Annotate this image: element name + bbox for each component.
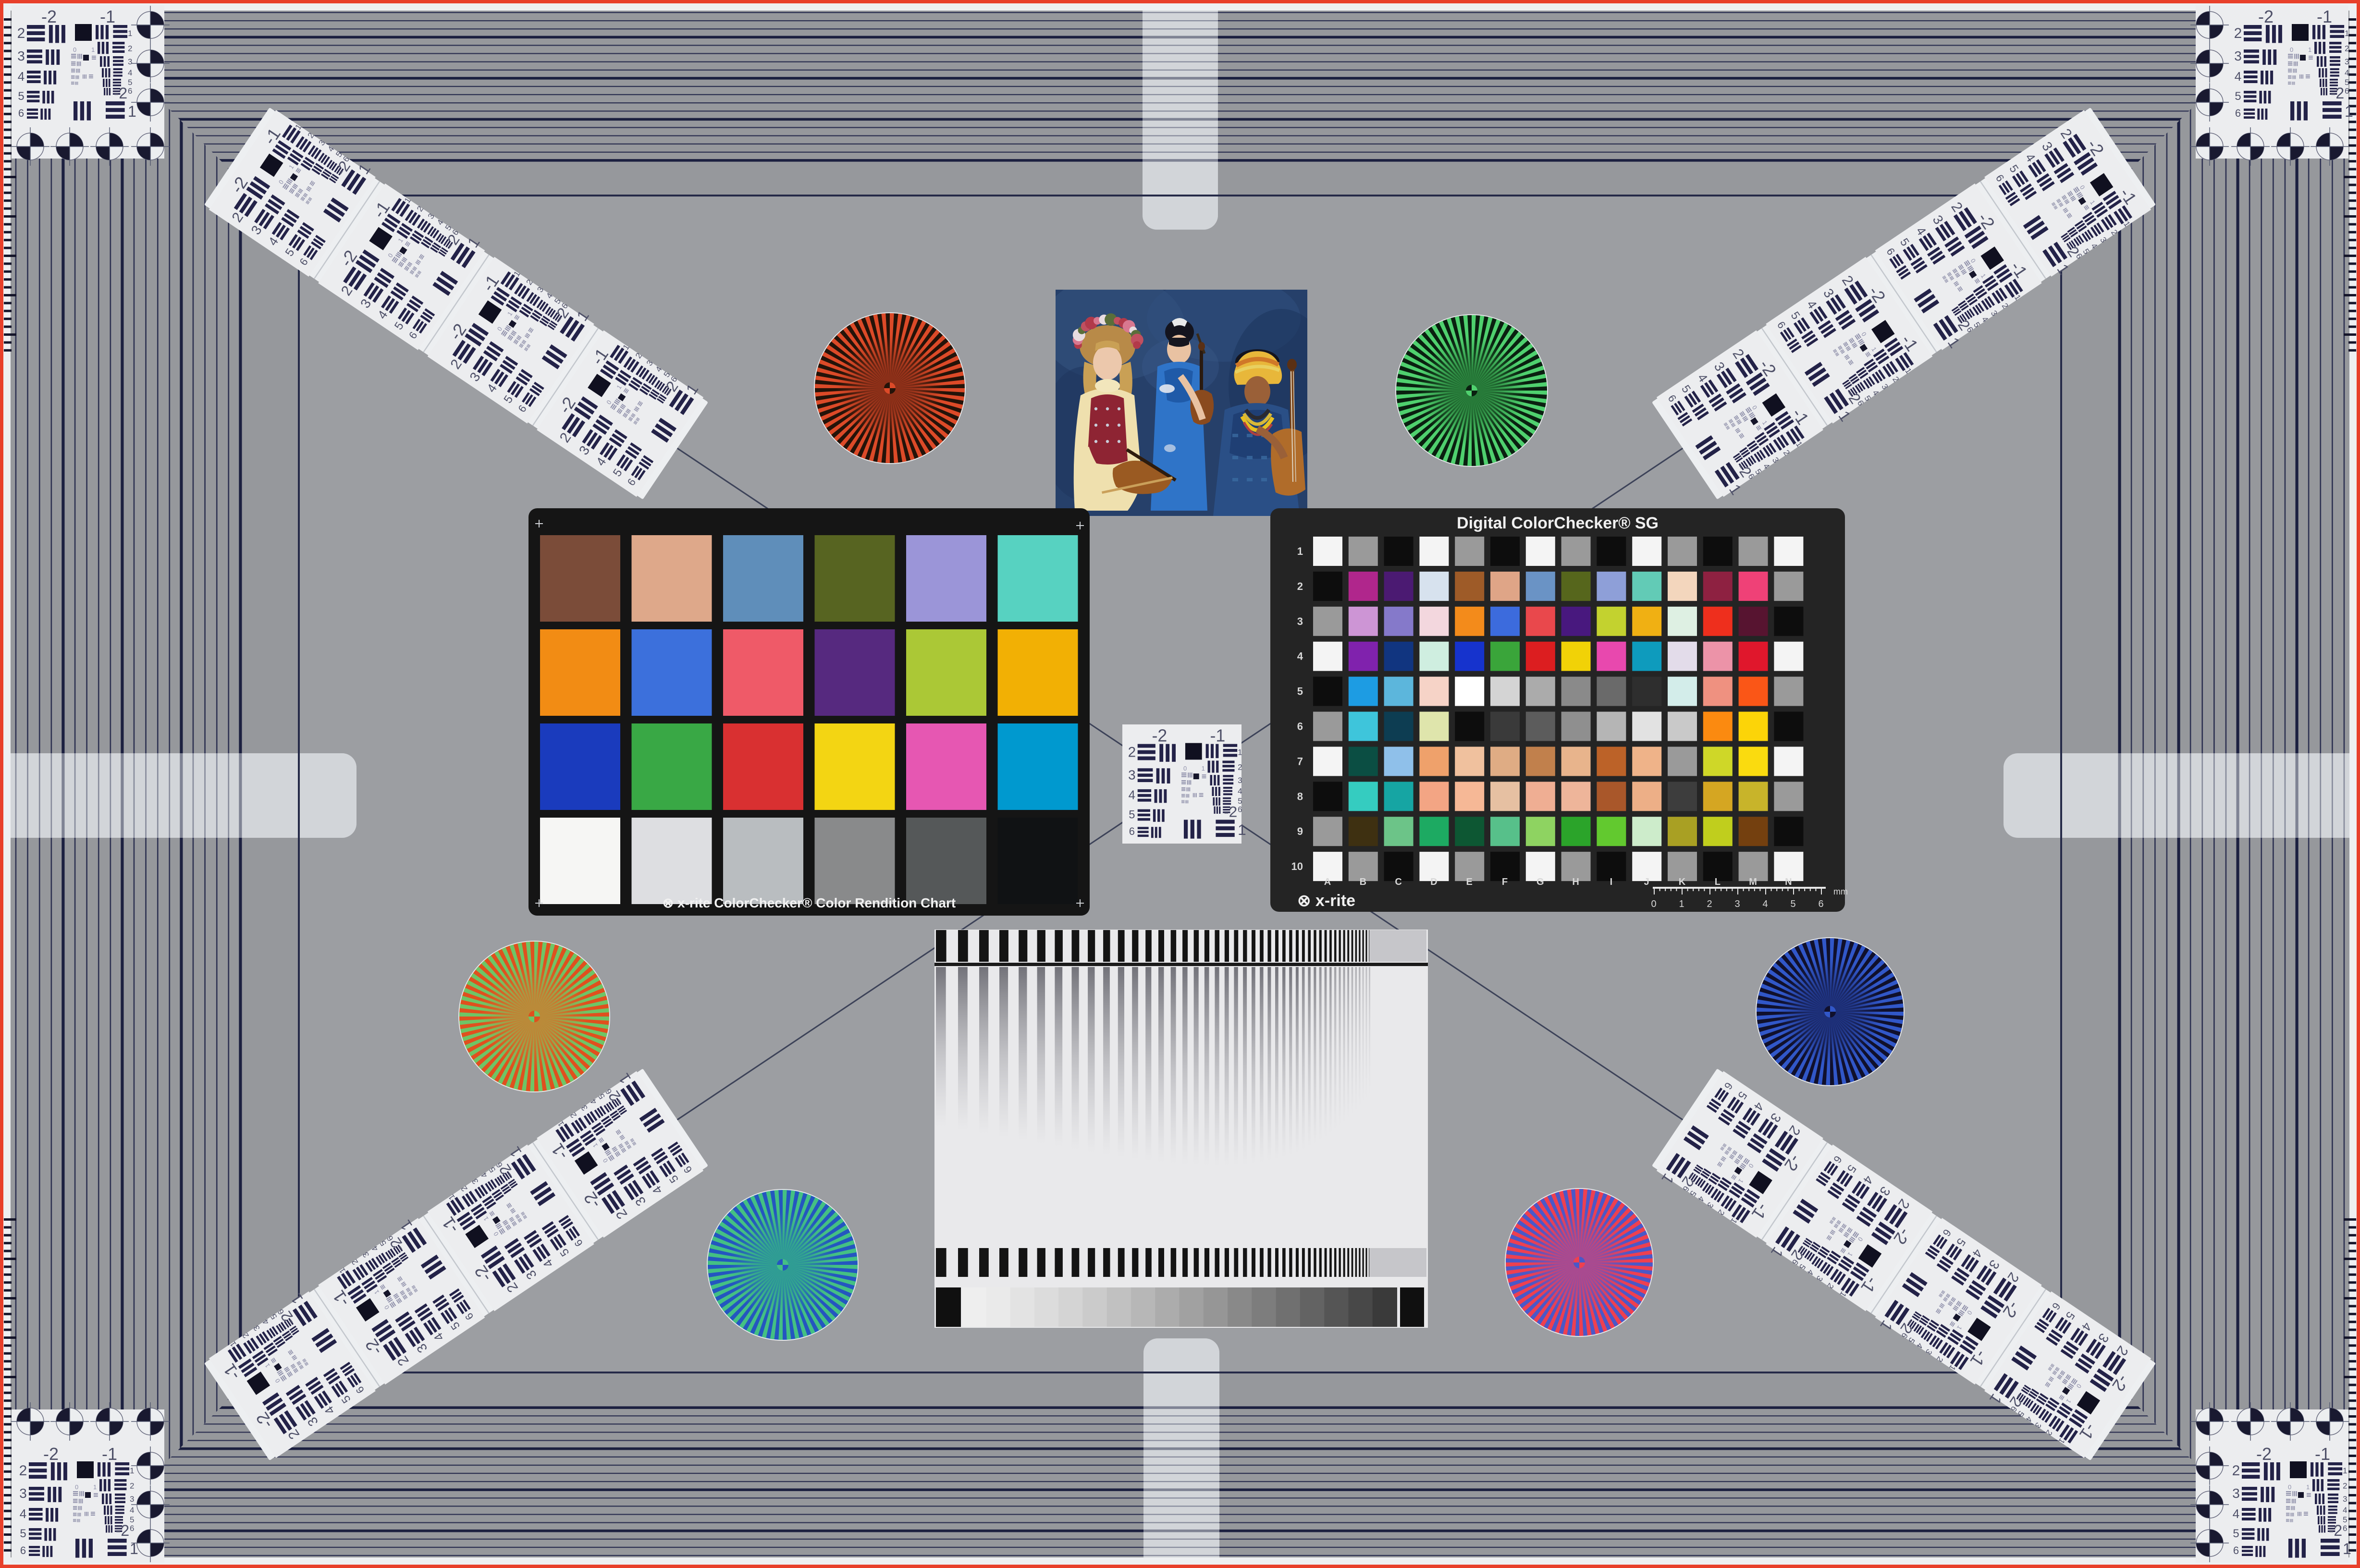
svg-text:1: 1 bbox=[1297, 545, 1303, 557]
svg-text:4: 4 bbox=[1762, 899, 1768, 909]
svg-text:1: 1 bbox=[1679, 899, 1684, 909]
svg-text:D: D bbox=[1430, 877, 1437, 887]
svg-text:C: C bbox=[1395, 877, 1401, 887]
svg-text:H: H bbox=[1572, 877, 1579, 887]
svg-text:J: J bbox=[1644, 877, 1649, 887]
svg-text:A: A bbox=[1324, 877, 1331, 887]
svg-text:Digital ColorChecker® SG: Digital ColorChecker® SG bbox=[1457, 514, 1659, 532]
svg-text:10: 10 bbox=[1291, 860, 1303, 872]
svg-text:mm: mm bbox=[1833, 887, 1848, 896]
svg-text:2: 2 bbox=[1297, 580, 1303, 592]
svg-text:2: 2 bbox=[1707, 899, 1712, 909]
svg-text:I: I bbox=[1610, 877, 1613, 887]
svg-text:B: B bbox=[1360, 877, 1366, 887]
svg-text:9: 9 bbox=[1297, 825, 1303, 837]
svg-text:6: 6 bbox=[1297, 721, 1303, 733]
svg-text:8: 8 bbox=[1297, 790, 1303, 802]
svg-text:3: 3 bbox=[1734, 899, 1740, 909]
svg-text:N: N bbox=[1785, 877, 1792, 887]
svg-text:K: K bbox=[1679, 877, 1686, 887]
svg-text:M: M bbox=[1749, 877, 1757, 887]
svg-text:⊗ x-rite ColorChecker® Color: ⊗ x-rite ColorChecker® Color Rendition C… bbox=[663, 895, 956, 910]
svg-text:E: E bbox=[1466, 877, 1473, 887]
svg-text:5: 5 bbox=[1297, 686, 1303, 698]
svg-text:G: G bbox=[1536, 877, 1544, 887]
svg-text:F: F bbox=[1502, 877, 1508, 887]
svg-text:6: 6 bbox=[1818, 899, 1823, 909]
svg-text:5: 5 bbox=[1790, 899, 1795, 909]
svg-text:7: 7 bbox=[1297, 755, 1303, 767]
svg-text:0: 0 bbox=[1651, 899, 1656, 909]
svg-text:⊗ x-rite: ⊗ x-rite bbox=[1297, 892, 1355, 910]
svg-text:3: 3 bbox=[1297, 615, 1303, 627]
svg-text:4: 4 bbox=[1297, 650, 1303, 662]
svg-text:L: L bbox=[1715, 877, 1721, 887]
